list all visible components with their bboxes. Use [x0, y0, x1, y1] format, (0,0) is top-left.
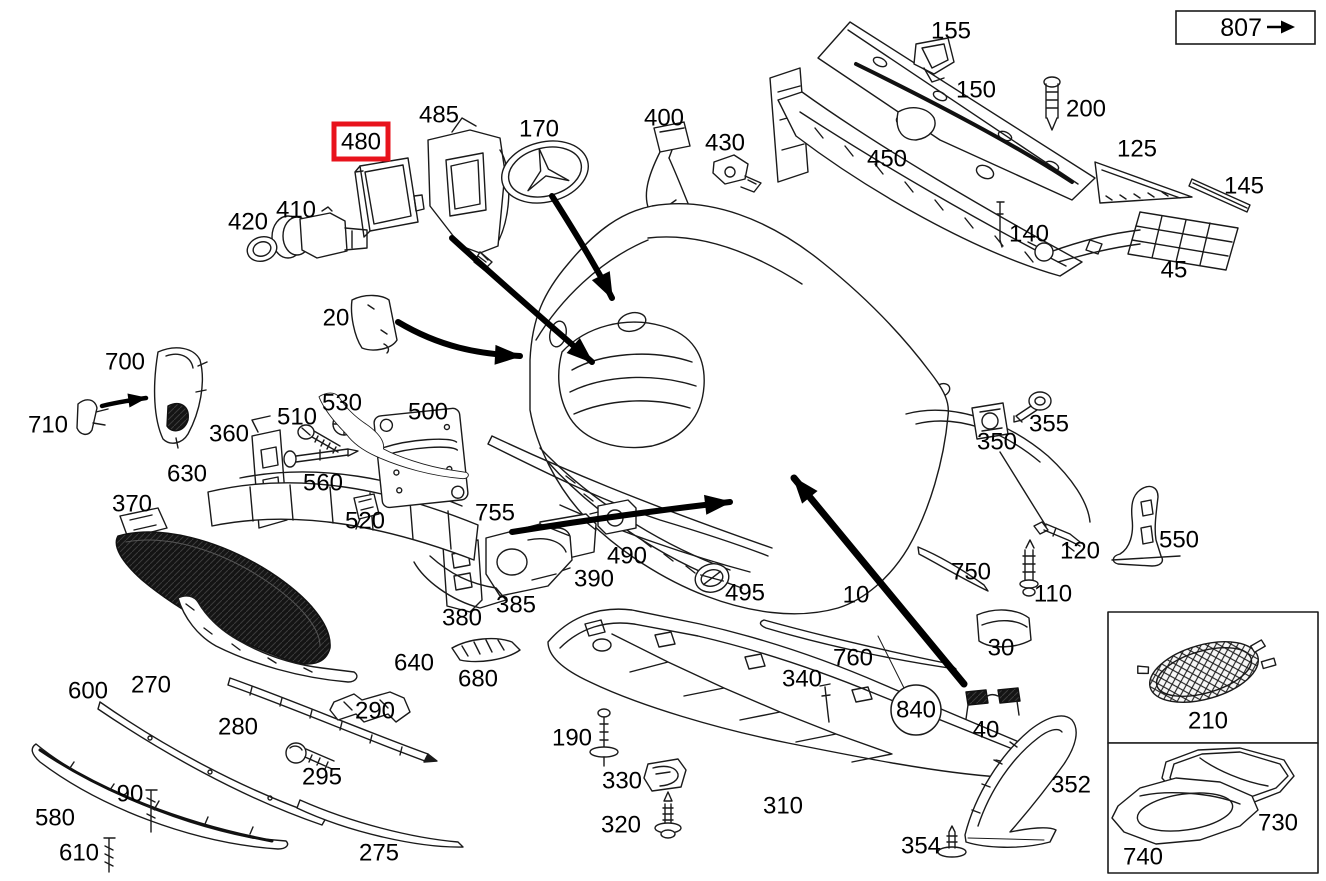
part-label-170[interactable]: 170 [519, 116, 559, 143]
part-drawing-40-bracket [966, 688, 1020, 719]
part-drawing-485-duct [428, 118, 509, 270]
part-drawing-200-rivet [1044, 77, 1060, 130]
part-drawing-560-rivet [284, 449, 358, 467]
part-label-200[interactable]: 200 [1066, 96, 1106, 123]
part-label-280[interactable]: 280 [218, 714, 258, 741]
part-label-500[interactable]: 500 [408, 399, 448, 426]
part-label-730[interactable]: 730 [1258, 810, 1298, 837]
balloon-leader-line [878, 636, 904, 688]
part-label-485[interactable]: 485 [419, 102, 459, 129]
part-label-640[interactable]: 640 [394, 650, 434, 677]
reference-link-label[interactable]: 807 [1220, 14, 1262, 42]
part-label-155[interactable]: 155 [931, 18, 971, 45]
part-label-45[interactable]: 45 [1161, 257, 1188, 284]
part-label-110[interactable]: 110 [1034, 581, 1072, 608]
part-drawing-20-cover [351, 295, 397, 353]
part-drawing-190-screw [590, 709, 618, 766]
part-label-480[interactable]: 480 [341, 129, 381, 156]
part-label-120[interactable]: 120 [1060, 538, 1100, 565]
part-label-680[interactable]: 680 [458, 666, 498, 693]
part-label-385[interactable]: 385 [496, 592, 536, 619]
part-label-510[interactable]: 510 [277, 404, 317, 431]
part-drawing-330-clipnut [644, 759, 686, 791]
part-label-530[interactable]: 530 [322, 390, 362, 417]
part-label-275[interactable]: 275 [359, 840, 399, 867]
part-label-380[interactable]: 380 [442, 605, 482, 632]
part-label-290[interactable]: 290 [355, 698, 395, 725]
part-label-740[interactable]: 740 [1123, 844, 1163, 871]
part-label-610[interactable]: 610 [59, 840, 99, 867]
part-drawing-480-module [355, 158, 424, 237]
part-label-760[interactable]: 760 [833, 645, 873, 672]
part-label-354[interactable]: 354 [901, 833, 941, 860]
part-drawing-170-emblem [495, 132, 595, 212]
part-drawing-580-strip [32, 744, 287, 849]
part-label-400[interactable]: 400 [644, 105, 684, 132]
part-label-360[interactable]: 360 [209, 421, 249, 448]
part-label-755[interactable]: 755 [475, 500, 515, 527]
part-label-330[interactable]: 330 [602, 768, 642, 795]
part-label-10[interactable]: 10 [843, 582, 870, 609]
part-label-630[interactable]: 630 [167, 461, 207, 488]
part-drawing-320-screw [655, 792, 681, 838]
part-drawing-354-screw [938, 826, 966, 857]
part-label-355[interactable]: 355 [1029, 411, 1069, 438]
part-label-140[interactable]: 140 [1009, 221, 1049, 248]
part-label-352[interactable]: 352 [1051, 772, 1091, 799]
part-drawing-385-grille [486, 524, 572, 596]
part-label-145[interactable]: 145 [1224, 173, 1264, 200]
part-label-310[interactable]: 310 [763, 793, 803, 820]
part-label-700[interactable]: 700 [105, 349, 145, 376]
part-label-495[interactable]: 495 [725, 580, 765, 607]
part-label-210[interactable]: 210 [1188, 708, 1228, 735]
part-label-580[interactable]: 580 [35, 805, 75, 832]
part-label-270[interactable]: 270 [131, 672, 171, 699]
part-label-750[interactable]: 750 [951, 559, 991, 586]
part-label-430[interactable]: 430 [705, 130, 745, 157]
part-label-190[interactable]: 190 [552, 725, 592, 752]
part-label-150[interactable]: 150 [956, 77, 996, 104]
part-drawing-45-bracket [1028, 212, 1238, 270]
part-label-520[interactable]: 520 [345, 508, 385, 535]
part-label-40[interactable]: 40 [973, 717, 1000, 744]
parts-diagram-canvas: 807 155150200125145450140454004304854801… [0, 0, 1326, 881]
part-label-320[interactable]: 320 [601, 812, 641, 839]
part-drawing-280-strip [228, 678, 437, 762]
part-label-840[interactable]: 840 [896, 697, 936, 724]
part-label-30[interactable]: 30 [988, 635, 1015, 662]
part-label-550[interactable]: 550 [1159, 527, 1199, 554]
part-label-125[interactable]: 125 [1117, 136, 1157, 163]
part-label-340[interactable]: 340 [782, 666, 822, 693]
part-label-390[interactable]: 390 [574, 566, 614, 593]
part-label-410[interactable]: 410 [276, 197, 316, 224]
part-label-350[interactable]: 350 [977, 429, 1017, 456]
part-drawing-610-rivet [104, 838, 115, 872]
part-drawing-680-grille [452, 639, 520, 662]
part-drawing-125-wedge [1095, 162, 1192, 203]
part-label-295[interactable]: 295 [302, 764, 342, 791]
part-label-20[interactable]: 20 [323, 305, 350, 332]
part-label-370[interactable]: 370 [112, 491, 152, 518]
exploded-view-drawing: 807 155150200125145450140454004304854801… [0, 0, 1326, 881]
reference-link-807[interactable]: 807 [1176, 11, 1315, 44]
part-label-450[interactable]: 450 [867, 146, 907, 173]
part-drawing-430-holder [713, 155, 761, 192]
part-label-90[interactable]: 90 [117, 781, 144, 808]
part-label-600[interactable]: 600 [68, 678, 108, 705]
part-label-710[interactable]: 710 [28, 412, 68, 439]
part-label-420[interactable]: 420 [228, 209, 268, 236]
part-drawing-700-bracket [155, 348, 207, 448]
part-label-560[interactable]: 560 [303, 470, 343, 497]
